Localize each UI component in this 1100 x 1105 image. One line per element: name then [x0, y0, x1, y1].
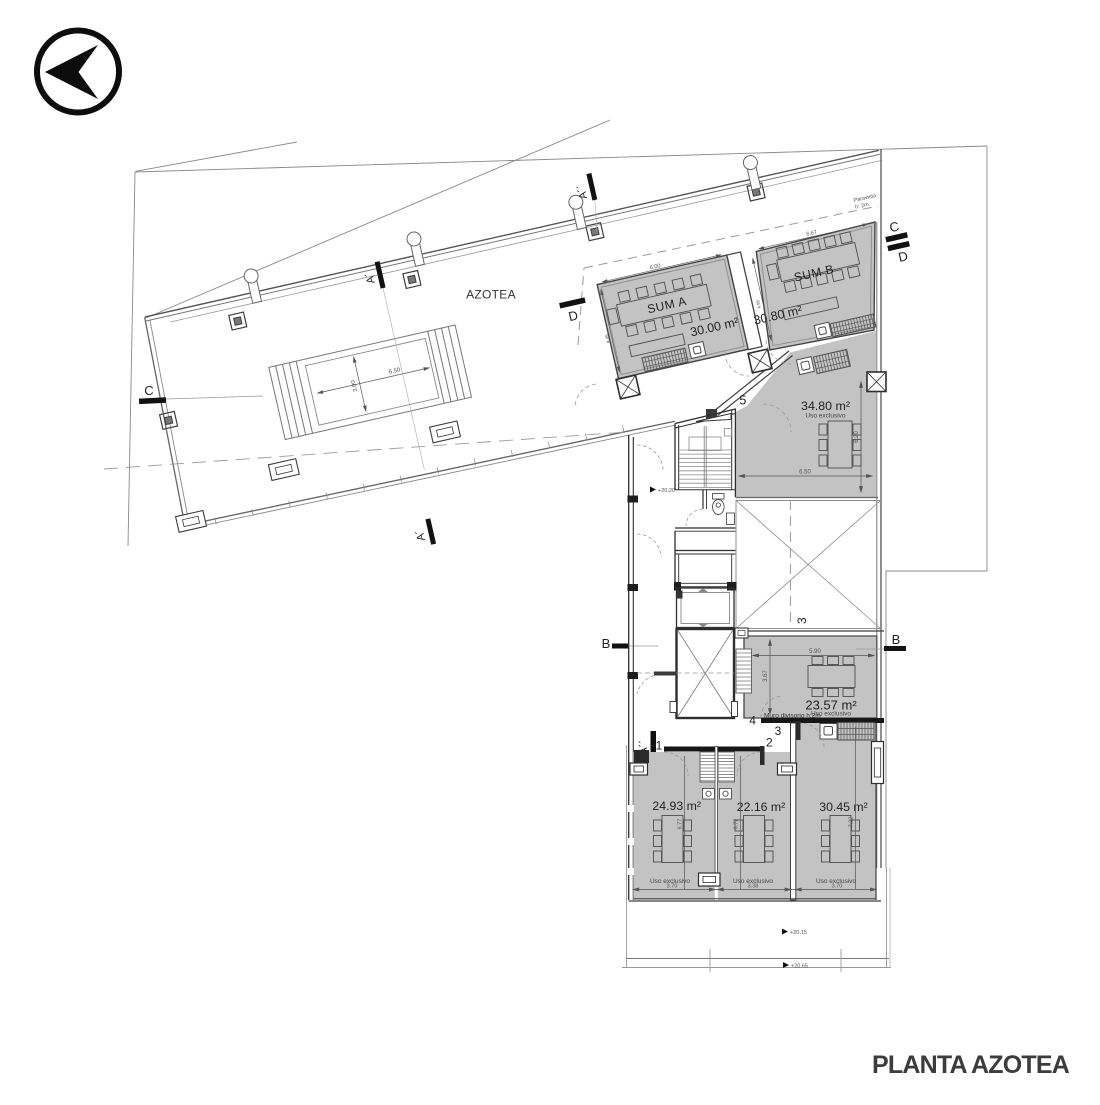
svg-text:30.45 m²: 30.45 m² [819, 800, 868, 814]
svg-text:B: B [602, 636, 611, 651]
svg-text:Uso exclusivo: Uso exclusivo [805, 413, 845, 420]
svg-text:B: B [892, 632, 901, 647]
svg-text:6.20: 6.20 [854, 431, 860, 443]
svg-text:+20.15: +20.15 [790, 930, 807, 936]
svg-text:5.90: 5.90 [809, 649, 821, 655]
svg-text:4: 4 [749, 714, 756, 728]
svg-text:AZOTEA: AZOTEA [466, 288, 516, 302]
svg-text:6.77: 6.77 [678, 819, 684, 830]
svg-text:3.67: 3.67 [763, 670, 769, 682]
svg-text:Muro divisorio h:2m: Muro divisorio h:2m [764, 713, 821, 720]
svg-text:6.72: 6.72 [734, 819, 740, 830]
svg-text:34.80 m²: 34.80 m² [801, 399, 850, 413]
svg-text:+20.65: +20.65 [791, 964, 808, 970]
svg-text:PLANTA AZOTEA: PLANTA AZOTEA [872, 1051, 1070, 1079]
svg-text:5: 5 [739, 394, 746, 408]
svg-text:+20.20: +20.20 [658, 488, 675, 494]
svg-text:1: 1 [656, 739, 663, 753]
svg-text:3.70: 3.70 [832, 884, 843, 890]
svg-text:3: 3 [775, 724, 782, 738]
svg-text:6.50: 6.50 [799, 470, 811, 476]
svg-text:7.22: 7.22 [849, 817, 855, 828]
svg-text:24.93 m²: 24.93 m² [652, 799, 701, 813]
svg-text:2: 2 [766, 736, 773, 750]
svg-text:3.38: 3.38 [748, 884, 759, 890]
svg-text:3.70: 3.70 [667, 884, 678, 890]
svg-text:22.16 m²: 22.16 m² [737, 800, 786, 814]
svg-text:3: 3 [795, 617, 809, 624]
svg-text:C: C [144, 383, 153, 398]
